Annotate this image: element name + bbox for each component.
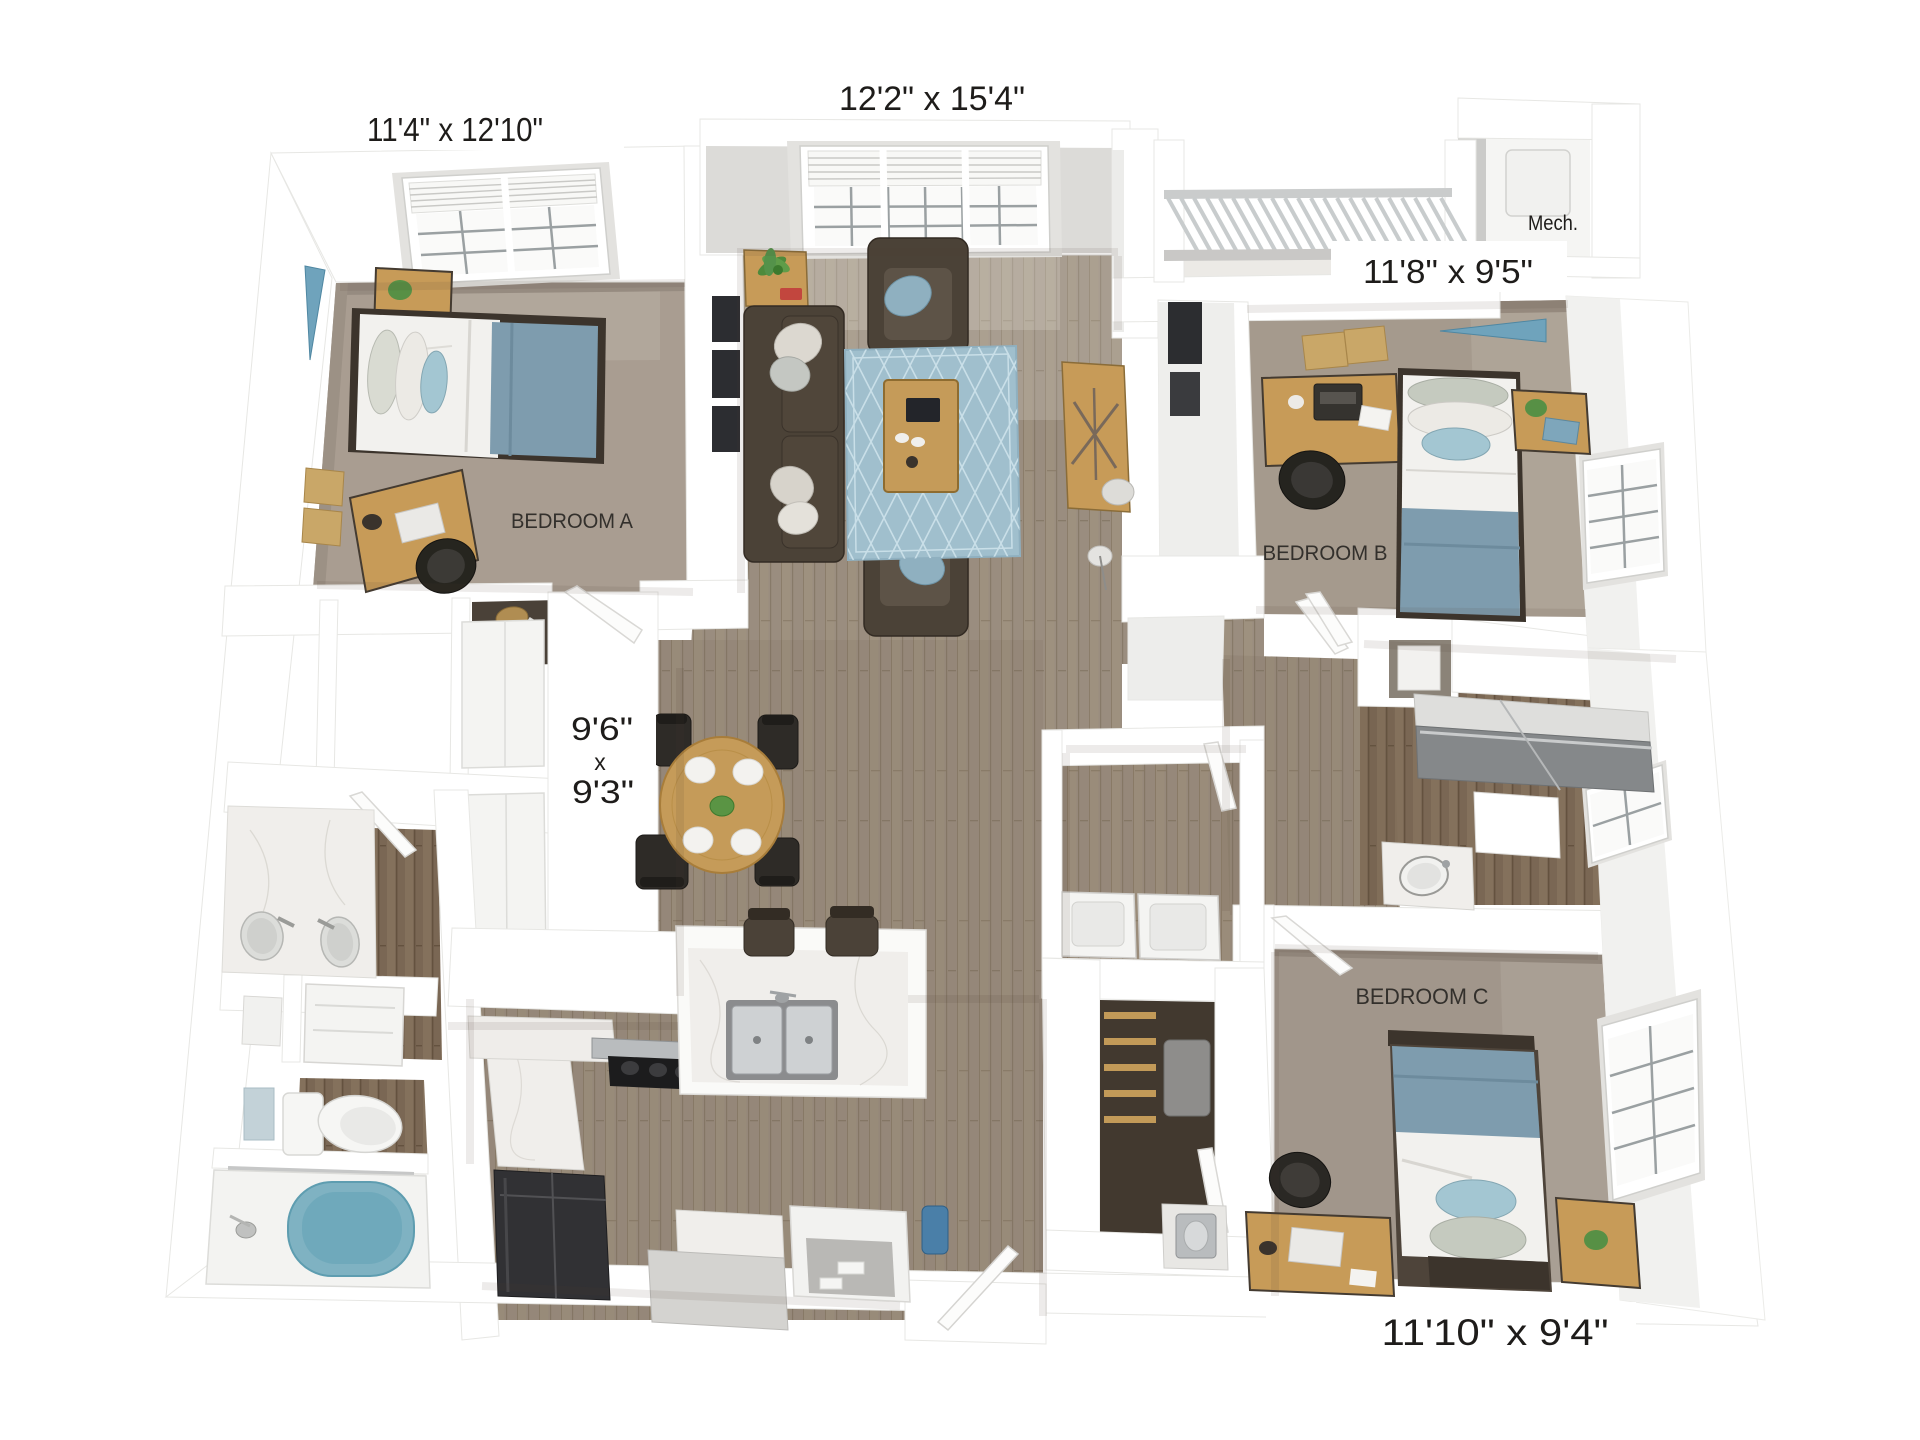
svg-text:11'10" x 9'4": 11'10" x 9'4"	[1382, 1312, 1609, 1353]
svg-text:12'2" x 15'4": 12'2" x 15'4"	[839, 80, 1025, 118]
svg-text:Mech.: Mech.	[1528, 212, 1578, 235]
svg-text:BEDROOM A: BEDROOM A	[511, 510, 633, 533]
svg-text:BEDROOM C: BEDROOM C	[1356, 984, 1489, 1009]
svg-text:11'8" x 9'5": 11'8" x 9'5"	[1363, 253, 1533, 290]
svg-text:x: x	[594, 749, 606, 775]
svg-text:11'4" x 12'10": 11'4" x 12'10"	[367, 111, 543, 148]
svg-text:9'3": 9'3"	[572, 774, 634, 810]
svg-text:BEDROOM B: BEDROOM B	[1263, 542, 1388, 565]
svg-text:9'6": 9'6"	[571, 711, 633, 747]
